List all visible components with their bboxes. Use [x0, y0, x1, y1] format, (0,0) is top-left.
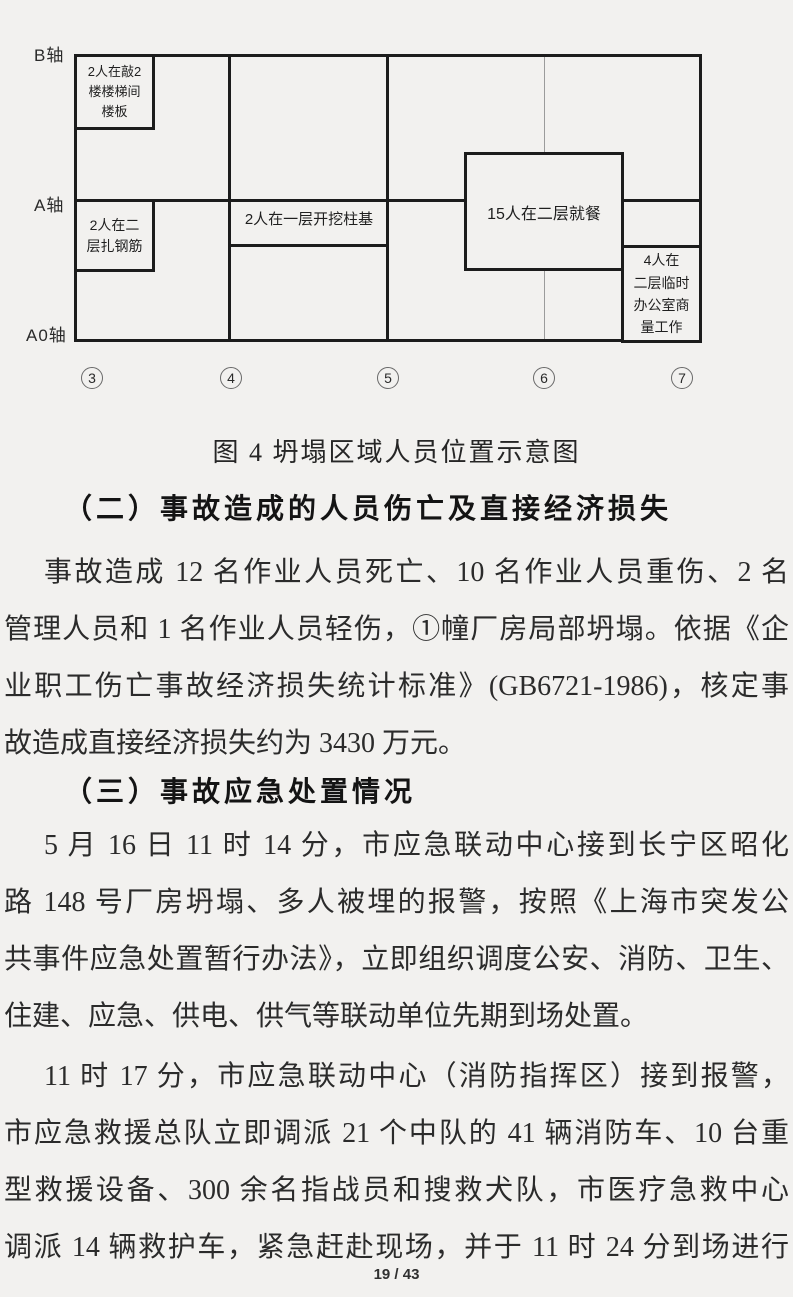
- section-heading-emergency-response: （三）事故应急处置情况: [64, 770, 784, 810]
- column-marker-6: 6: [533, 367, 555, 389]
- box-knocking-floor-slab: 2人在敲2 楼楼梯间 楼板: [74, 54, 155, 130]
- paragraph-line: 市应急救援总队立即调派 21 个中队的 41 辆消防车、10 台重: [4, 1105, 789, 1162]
- paragraph-line: 管理人员和 1 名作业人员轻伤，①幢厂房局部坍塌。依据《企: [4, 601, 789, 658]
- paragraph-line: 业职工伤亡事故经济损失统计标准》(GB6721-1986)，核定事: [4, 658, 789, 715]
- collapse-area-diagram: B轴 A轴 A0轴 2人在敲2 楼楼梯间 楼板 2人在二 层扎钢筋 15人在二层…: [0, 0, 793, 400]
- column-marker-3: 3: [81, 367, 103, 389]
- paragraph-rescue-dispatch: 11 时 17 分，市应急联动中心（消防指挥区）接到报警， 市应急救援总队立即调…: [4, 1048, 789, 1276]
- label-excavating-workers: 2人在一层开挖柱基: [230, 208, 388, 229]
- grid-line-col-4: [228, 54, 231, 342]
- axis-label-a0: A0轴: [26, 321, 67, 346]
- grid-line-col-5: [386, 54, 389, 342]
- paragraph-line: 型救援设备、300 余名指战员和搜救犬队，市医疗急救中心: [4, 1162, 789, 1219]
- paragraph-line: 住建、应急、供电、供气等联动单位先期到场处置。: [4, 988, 789, 1045]
- paragraph-first-alarm: 5 月 16 日 11 时 14 分，市应急联动中心接到长宁区昭化 路 148 …: [4, 817, 789, 1045]
- axis-label-b: B轴: [34, 41, 64, 66]
- column-marker-4: 4: [220, 367, 242, 389]
- document-page: { "diagram": { "axis_labels": ["B轴", "A轴…: [0, 0, 793, 1297]
- column-marker-5: 5: [377, 367, 399, 389]
- axis-label-a: A轴: [34, 191, 64, 216]
- paragraph-casualties: 事故造成 12 名作业人员死亡、10 名作业人员重伤、2 名 管理人员和 1 名…: [4, 544, 789, 772]
- box-dining-workers: 15人在二层就餐: [464, 152, 624, 271]
- grid-line-excavate-band: [228, 244, 389, 247]
- figure-caption: 图 4 坍塌区域人员位置示意图: [0, 432, 793, 469]
- paragraph-line: 11 时 17 分，市应急联动中心（消防指挥区）接到报警，: [4, 1048, 789, 1105]
- box-rebar-workers: 2人在二 层扎钢筋: [74, 199, 155, 272]
- paragraph-line: 故造成直接经济损失约为 3430 万元。: [4, 715, 789, 772]
- paragraph-line: 5 月 16 日 11 时 14 分，市应急联动中心接到长宁区昭化: [4, 817, 789, 874]
- page-number: 19 / 43: [0, 1266, 793, 1283]
- paragraph-line: 共事件应急处置暂行办法》，立即组织调度公安、消防、卫生、: [4, 931, 789, 988]
- paragraph-line: 事故造成 12 名作业人员死亡、10 名作业人员重伤、2 名: [4, 544, 789, 601]
- column-marker-7: 7: [671, 367, 693, 389]
- section-heading-casualties: （二）事故造成的人员伤亡及直接经济损失: [64, 487, 784, 527]
- box-temp-office-workers: 4人在 二层临时 办公室商 量工作: [621, 245, 702, 343]
- paragraph-line: 路 148 号厂房坍塌、多人被埋的报警，按照《上海市突发公: [4, 874, 789, 931]
